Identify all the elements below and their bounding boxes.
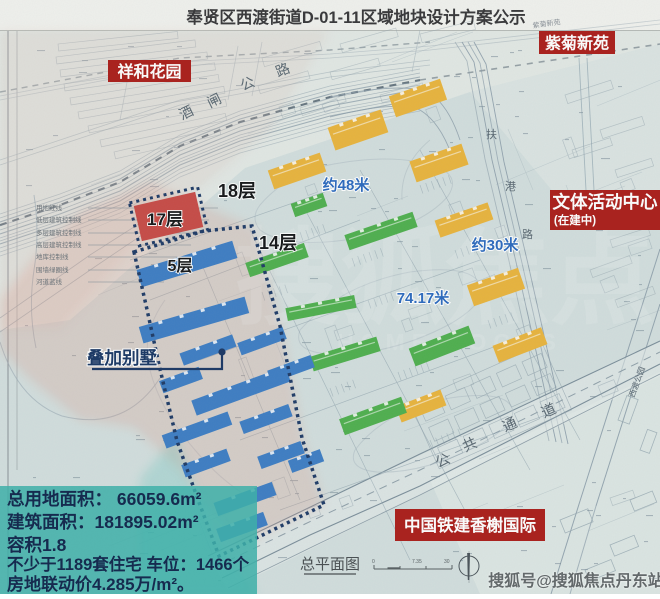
svg-text:奉贤区西渡街道D-01-11区域地块设计方案公示: 奉贤区西渡街道D-01-11区域地块设计方案公示 (185, 7, 525, 27)
svg-text:搜狐号@搜狐焦点丹东站: 搜狐号@搜狐焦点丹东站 (488, 571, 660, 590)
